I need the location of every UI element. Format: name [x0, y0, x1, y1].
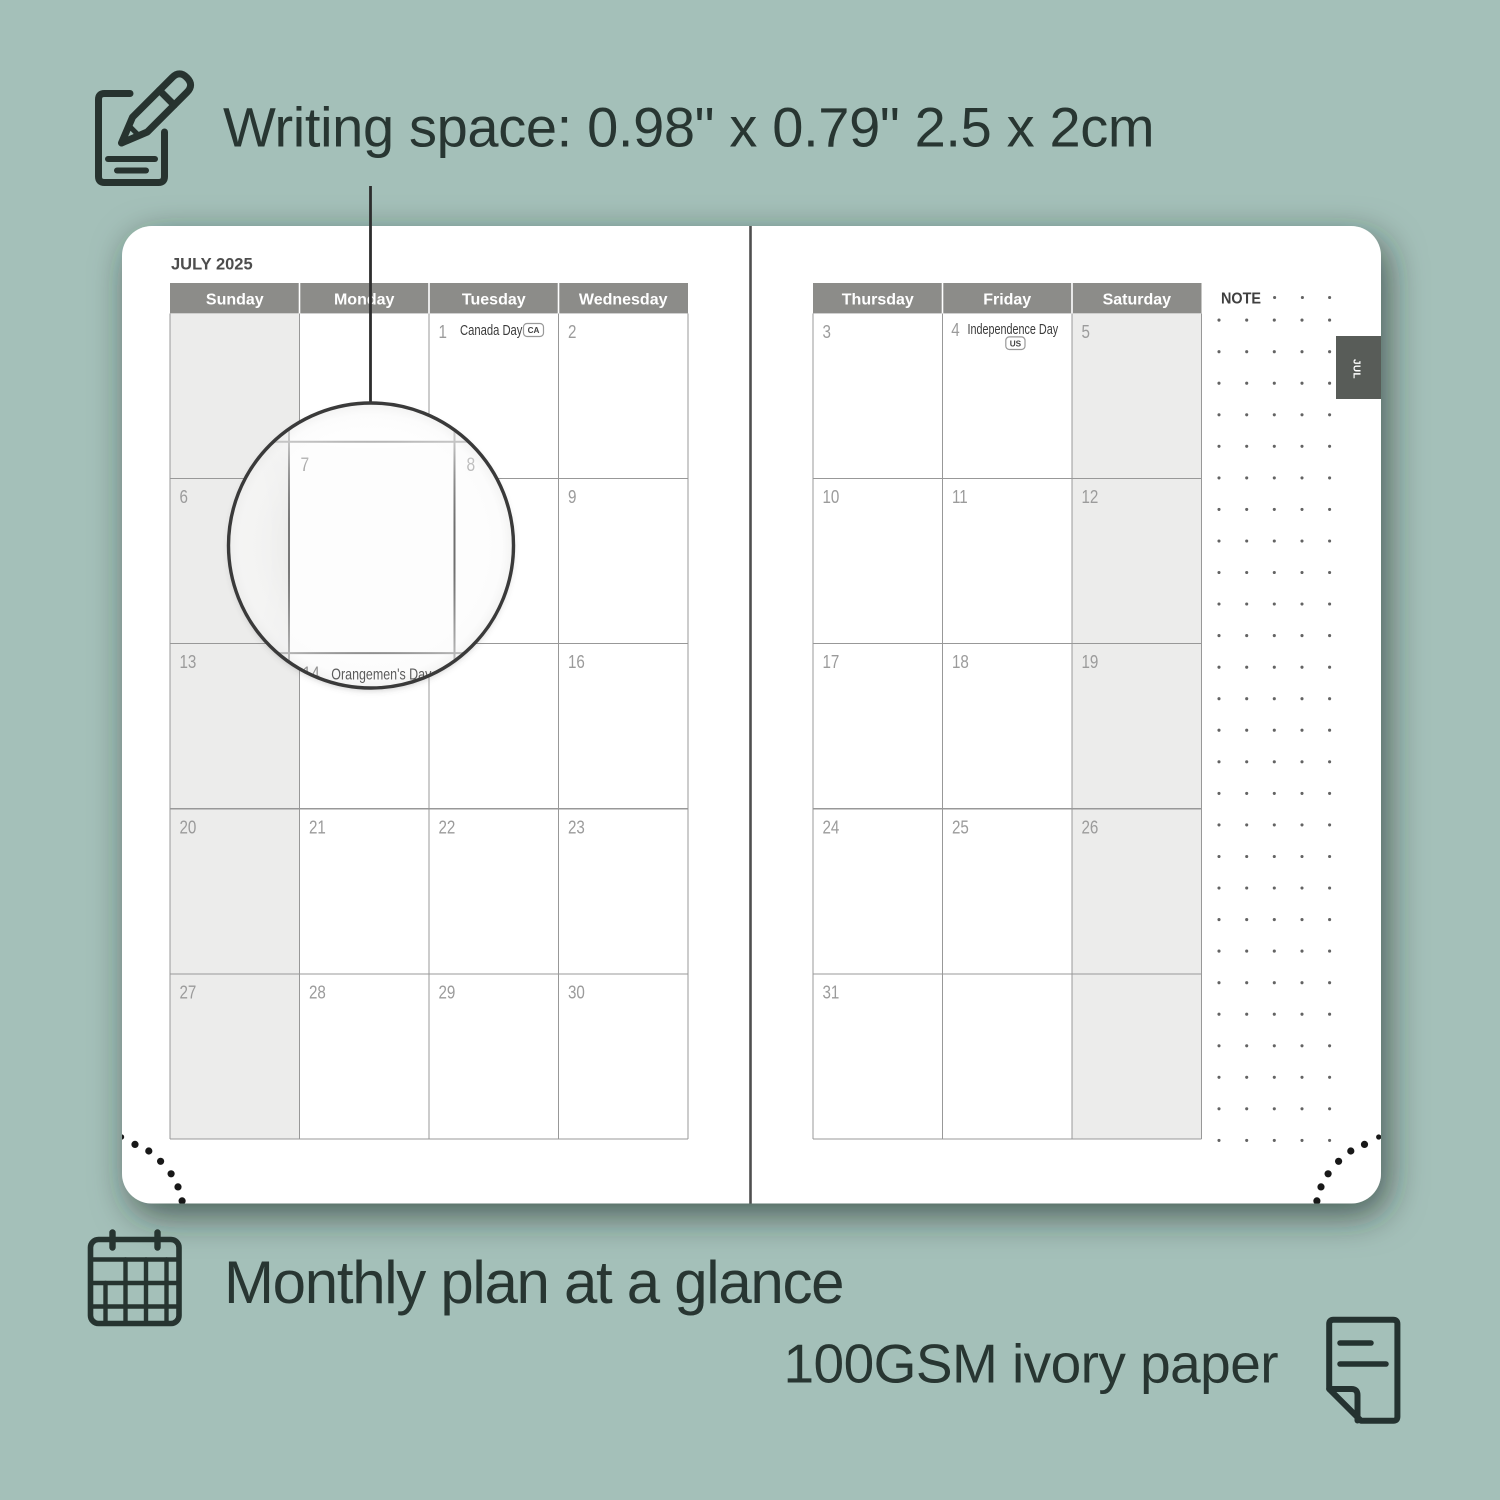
svg-text:100GSM ivory paper: 100GSM ivory paper	[784, 1333, 1279, 1395]
svg-text:22: 22	[439, 817, 456, 838]
svg-text:18: 18	[952, 652, 969, 673]
svg-text:1: 1	[439, 322, 447, 343]
svg-text:17: 17	[823, 652, 840, 673]
svg-text:11: 11	[952, 487, 968, 508]
svg-text:JULY 2025: JULY 2025	[171, 256, 253, 274]
svg-text:Friday: Friday	[983, 292, 1031, 309]
svg-text:Monthly plan at a glance: Monthly plan at a glance	[224, 1249, 843, 1316]
svg-text:6: 6	[180, 487, 188, 508]
svg-text:28: 28	[309, 982, 326, 1003]
svg-text:US: US	[1010, 339, 1022, 348]
svg-text:25: 25	[952, 817, 969, 838]
svg-text:19: 19	[1082, 652, 1099, 673]
svg-text:23: 23	[568, 817, 585, 838]
svg-text:Wednesday: Wednesday	[579, 292, 668, 309]
svg-text:5: 5	[1082, 322, 1090, 343]
svg-text:Canada Day: Canada Day	[460, 322, 523, 339]
svg-text:NOTE: NOTE	[1221, 290, 1261, 308]
svg-text:10: 10	[823, 487, 840, 508]
svg-text:29: 29	[439, 982, 456, 1003]
svg-text:Monday: Monday	[334, 292, 395, 309]
svg-text:Saturday: Saturday	[1103, 292, 1172, 309]
svg-text:31: 31	[823, 982, 840, 1003]
svg-text:3: 3	[823, 322, 831, 343]
svg-text:27: 27	[180, 982, 197, 1003]
svg-text:Tuesday: Tuesday	[462, 292, 526, 309]
svg-text:Thursday: Thursday	[842, 292, 914, 309]
svg-text:4: 4	[951, 320, 959, 341]
svg-text:2: 2	[568, 322, 576, 343]
svg-text:13: 13	[180, 652, 197, 673]
svg-text:20: 20	[180, 817, 197, 838]
svg-text:24: 24	[823, 817, 840, 838]
svg-text:Writing space: 0.98" x 0.79" 2: Writing space: 0.98" x 0.79" 2.5 x 2cm	[223, 96, 1154, 159]
svg-text:Sunday: Sunday	[206, 292, 264, 309]
svg-text:CA: CA	[528, 326, 540, 335]
svg-text:9: 9	[568, 487, 576, 508]
svg-text:26: 26	[1082, 817, 1099, 838]
svg-text:30: 30	[568, 982, 585, 1003]
svg-text:JUL: JUL	[1351, 359, 1362, 379]
svg-text:21: 21	[309, 817, 326, 838]
svg-text:Independence Day: Independence Day	[968, 321, 1059, 338]
svg-text:16: 16	[568, 652, 585, 673]
svg-text:12: 12	[1082, 487, 1099, 508]
